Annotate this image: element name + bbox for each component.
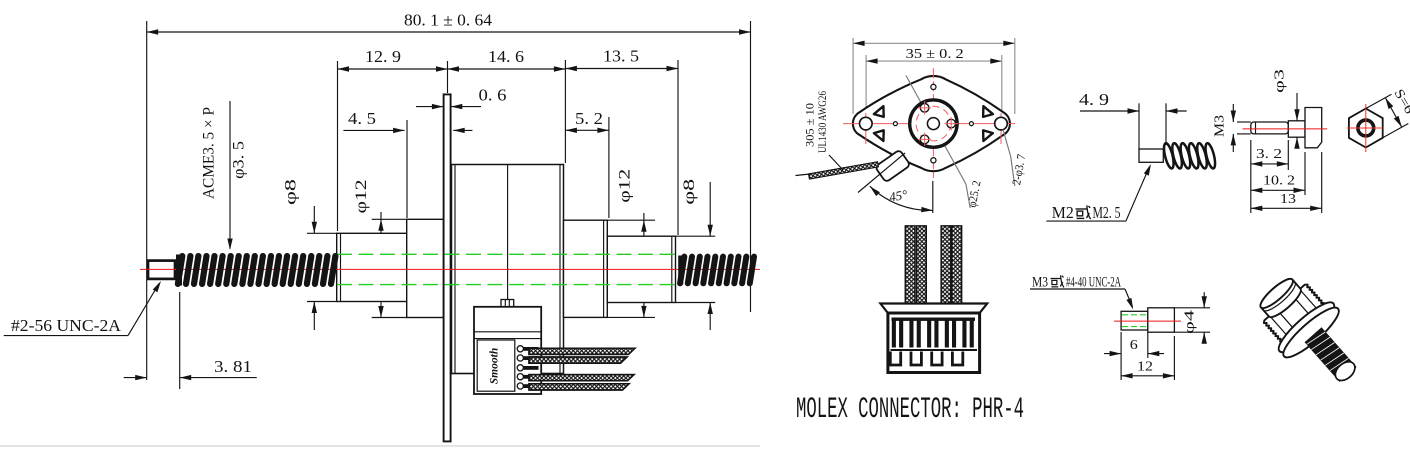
svg-text:φ3. 5: φ3. 5 [231, 141, 248, 179]
svg-text:45°: 45° [888, 187, 909, 205]
svg-text:3. 81: 3. 81 [214, 357, 252, 376]
svg-text:0. 6: 0. 6 [479, 86, 507, 105]
svg-text:10. 2: 10. 2 [1263, 174, 1295, 189]
svg-text:4. 9: 4. 9 [1079, 90, 1109, 109]
svg-text:#2-56 UNC-2A: #2-56 UNC-2A [11, 316, 122, 335]
svg-text:M3: M3 [1212, 115, 1227, 137]
svg-text:4. 5: 4. 5 [348, 109, 376, 128]
svg-text:M2: M2 [1052, 203, 1074, 222]
svg-text:13. 5: 13. 5 [603, 47, 639, 66]
svg-text:Smooth: Smooth [489, 348, 501, 384]
svg-text:6: 6 [1130, 338, 1138, 353]
svg-text:φ3: φ3 [1272, 69, 1287, 93]
svg-text:ACME3. 5 × P: ACME3. 5 × P [201, 107, 218, 199]
svg-text:3. 2: 3. 2 [1256, 147, 1282, 162]
svg-text:14. 6: 14. 6 [488, 47, 524, 66]
svg-text:φ12: φ12 [353, 180, 370, 214]
svg-text:35 ± 0. 2: 35 ± 0. 2 [906, 46, 964, 61]
svg-text:13: 13 [1280, 192, 1296, 207]
svg-text:φ8: φ8 [681, 179, 698, 205]
svg-text:M3: M3 [1032, 274, 1048, 290]
svg-text:φ4: φ4 [1182, 310, 1197, 334]
svg-text:12: 12 [1137, 360, 1153, 375]
svg-text:80. 1 ± 0. 64: 80. 1 ± 0. 64 [404, 11, 492, 30]
svg-text:5. 2: 5. 2 [575, 109, 603, 128]
svg-text:305 ± 10: 305 ± 10 [805, 103, 817, 147]
svg-text:φ8: φ8 [283, 179, 300, 205]
svg-text:#4-40 UNC-2A: #4-40 UNC-2A [1066, 274, 1121, 290]
svg-text:MOLEX CONNECTOR: PHR-4: MOLEX CONNECTOR: PHR-4 [796, 393, 1024, 427]
svg-text:12. 9: 12. 9 [365, 47, 401, 66]
svg-text:φ12: φ12 [617, 169, 634, 203]
svg-text:M2. 5: M2. 5 [1093, 203, 1121, 222]
svg-text:UL1430 AWG26: UL1430 AWG26 [817, 91, 829, 153]
